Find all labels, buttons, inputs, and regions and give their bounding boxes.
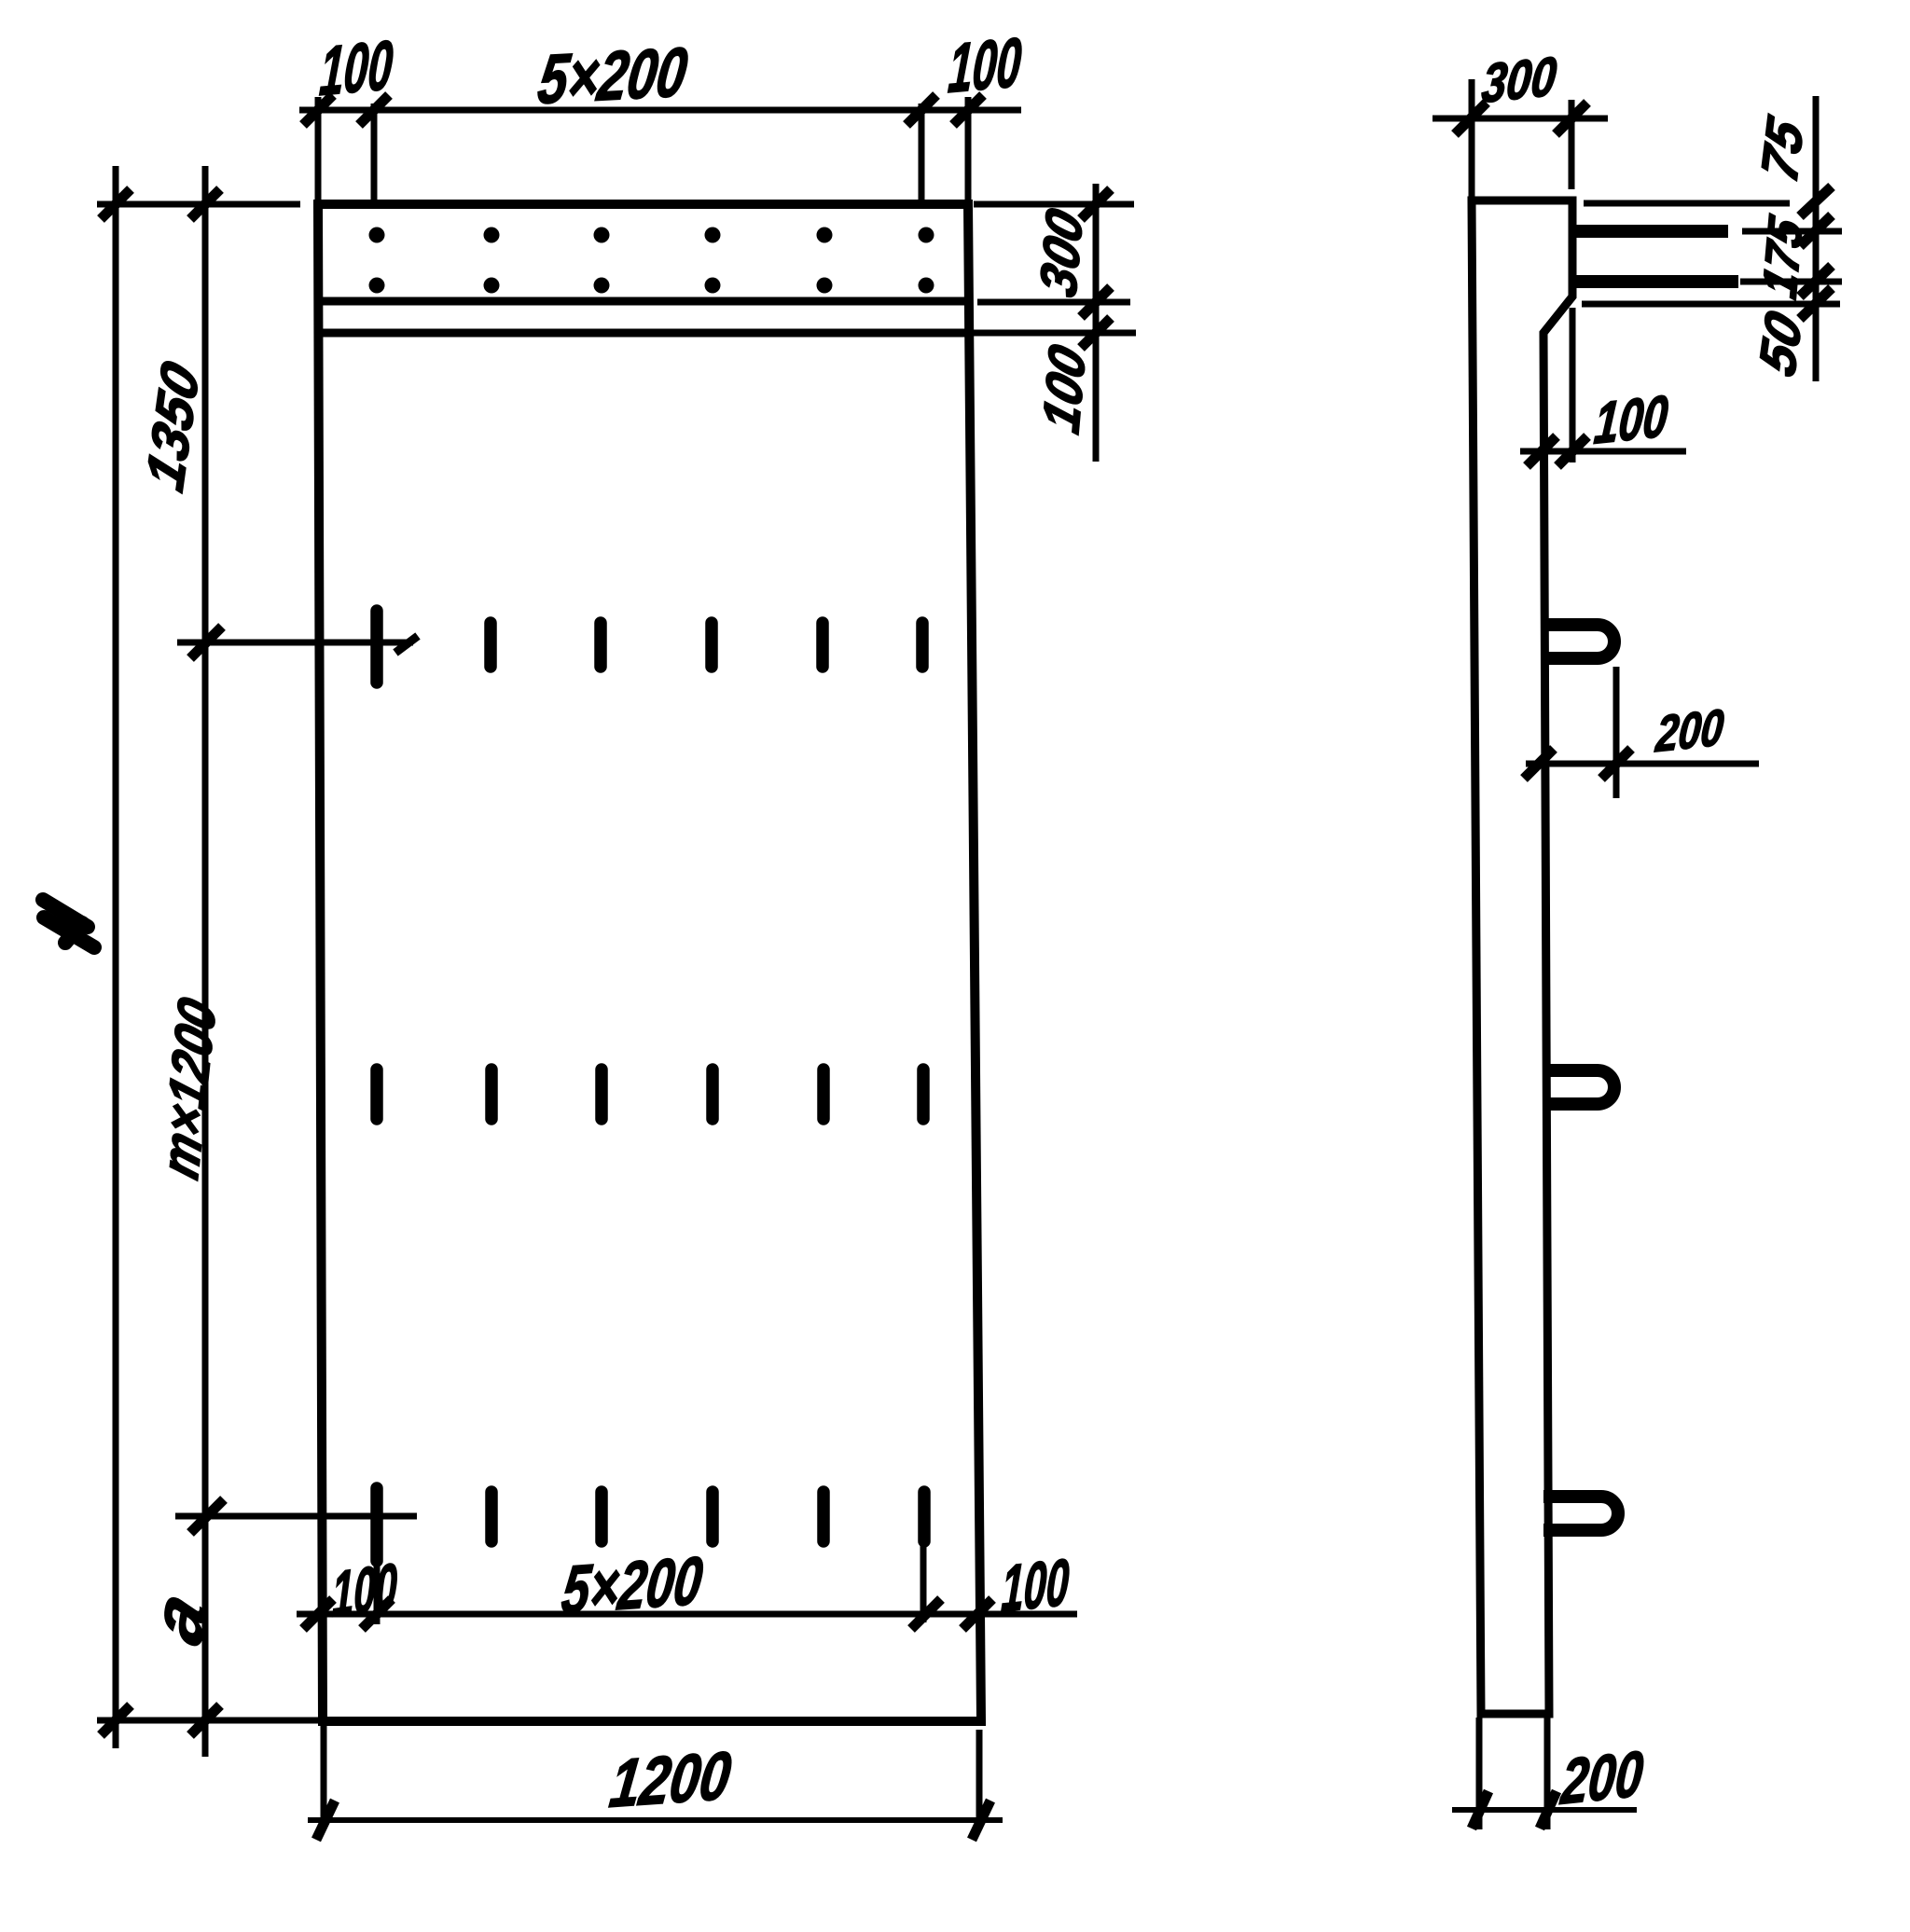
svg-text:100: 100 (946, 24, 1023, 107)
svg-text:200: 200 (1653, 699, 1726, 764)
svg-text:100: 100 (1592, 383, 1670, 456)
svg-text:100: 100 (1000, 1546, 1071, 1626)
svg-text:5×200: 5×200 (559, 1542, 707, 1628)
svg-text:1200: 1200 (606, 1737, 735, 1822)
svg-text:100: 100 (332, 1550, 398, 1631)
svg-text:5×200: 5×200 (534, 34, 692, 118)
svg-text:100: 100 (317, 27, 394, 110)
svg-text:300: 300 (1479, 46, 1558, 115)
svg-text:200: 200 (1557, 1738, 1645, 1819)
